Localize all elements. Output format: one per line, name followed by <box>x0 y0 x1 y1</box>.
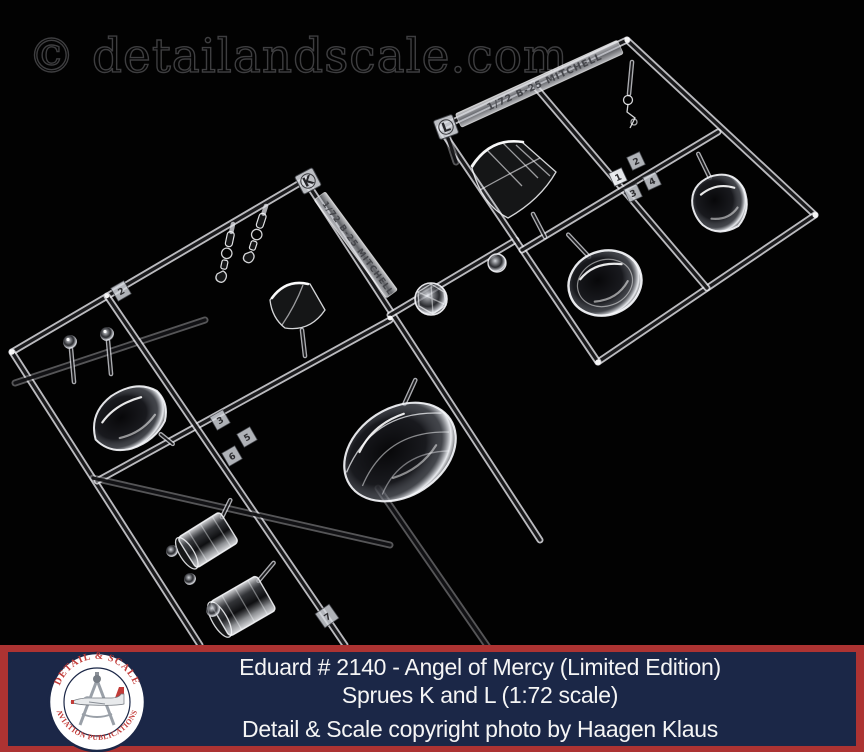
caption-line-1: Eduard # 2140 - Angel of Mercy (Limited … <box>104 653 856 681</box>
sprue-k-letter-tag: K <box>294 167 321 194</box>
nose-cone-part <box>270 283 325 356</box>
watermark-text: © detailandscale.com <box>28 29 569 84</box>
caption-text: Eduard # 2140 - Angel of Mercy (Limited … <box>104 653 856 743</box>
nose-glazing-part <box>321 376 474 522</box>
cockpit-canopy-part <box>472 141 556 237</box>
light-post-part <box>63 335 77 382</box>
caption-line-2: Sprues K and L (1:72 scale) <box>104 681 856 709</box>
turret-drum-part <box>202 563 294 641</box>
sprue-l: 1/72 B-25 MITCHELL L 1 2 3 4 <box>433 37 817 364</box>
lens-part <box>184 573 196 585</box>
sprue-k-molding-bar: 1/72 B-25 MITCHELL <box>314 192 398 299</box>
detail-and-scale-logo: DETAIL & SCALE AVIATION PUBLICATIONS <box>40 650 155 752</box>
sight-part <box>624 62 638 128</box>
caption-line-3: Detail & Scale copyright photo by Haagen… <box>104 715 856 743</box>
sprue-k-rails <box>9 177 540 645</box>
part-number-tag: 2 <box>627 152 646 171</box>
sprue-k: 1/72 B-25 MITCHELL K 2 3 5 6 7 <box>9 167 540 645</box>
sprue-photo: © detailandscale.com 1/72 <box>0 0 864 645</box>
dome-blister-part <box>680 145 754 238</box>
lens-part <box>166 545 178 557</box>
lens-part <box>206 603 220 617</box>
part-number-tag: 1 <box>609 168 628 187</box>
sprue-k-molding-text: 1/72 B-25 MITCHELL <box>320 200 396 298</box>
astrodome-part <box>415 254 506 315</box>
photo-page: © detailandscale.com 1/72 <box>0 0 864 752</box>
part-number-tag: 5 <box>237 427 257 447</box>
